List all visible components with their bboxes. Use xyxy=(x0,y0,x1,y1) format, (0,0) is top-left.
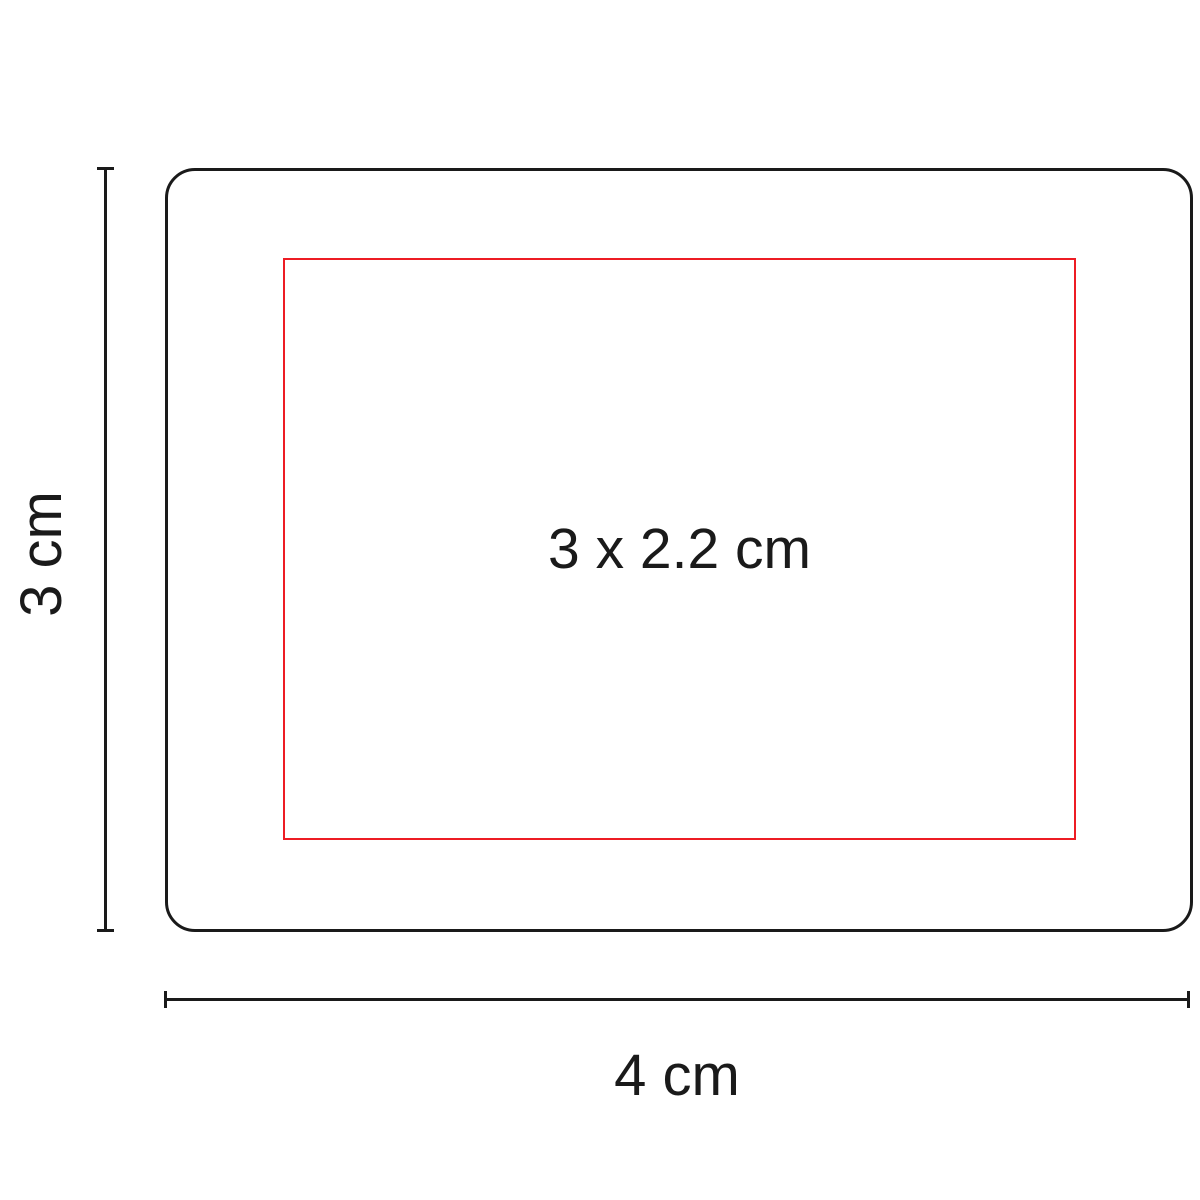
imprint-area-rect: 3 x 2.2 cm xyxy=(283,258,1076,840)
dimension-diagram: 3 cm 3 x 2.2 cm 4 cm xyxy=(0,0,1200,1200)
imprint-area-label: 3 x 2.2 cm xyxy=(548,521,811,578)
height-dimension-line xyxy=(104,168,107,932)
height-dimension-label: 3 cm xyxy=(13,491,71,617)
width-dimension-line xyxy=(165,998,1190,1001)
width-dimension-label: 4 cm xyxy=(614,1047,740,1105)
height-dimension-bottom-tick xyxy=(97,929,114,932)
width-dimension-right-tick xyxy=(1187,991,1190,1008)
